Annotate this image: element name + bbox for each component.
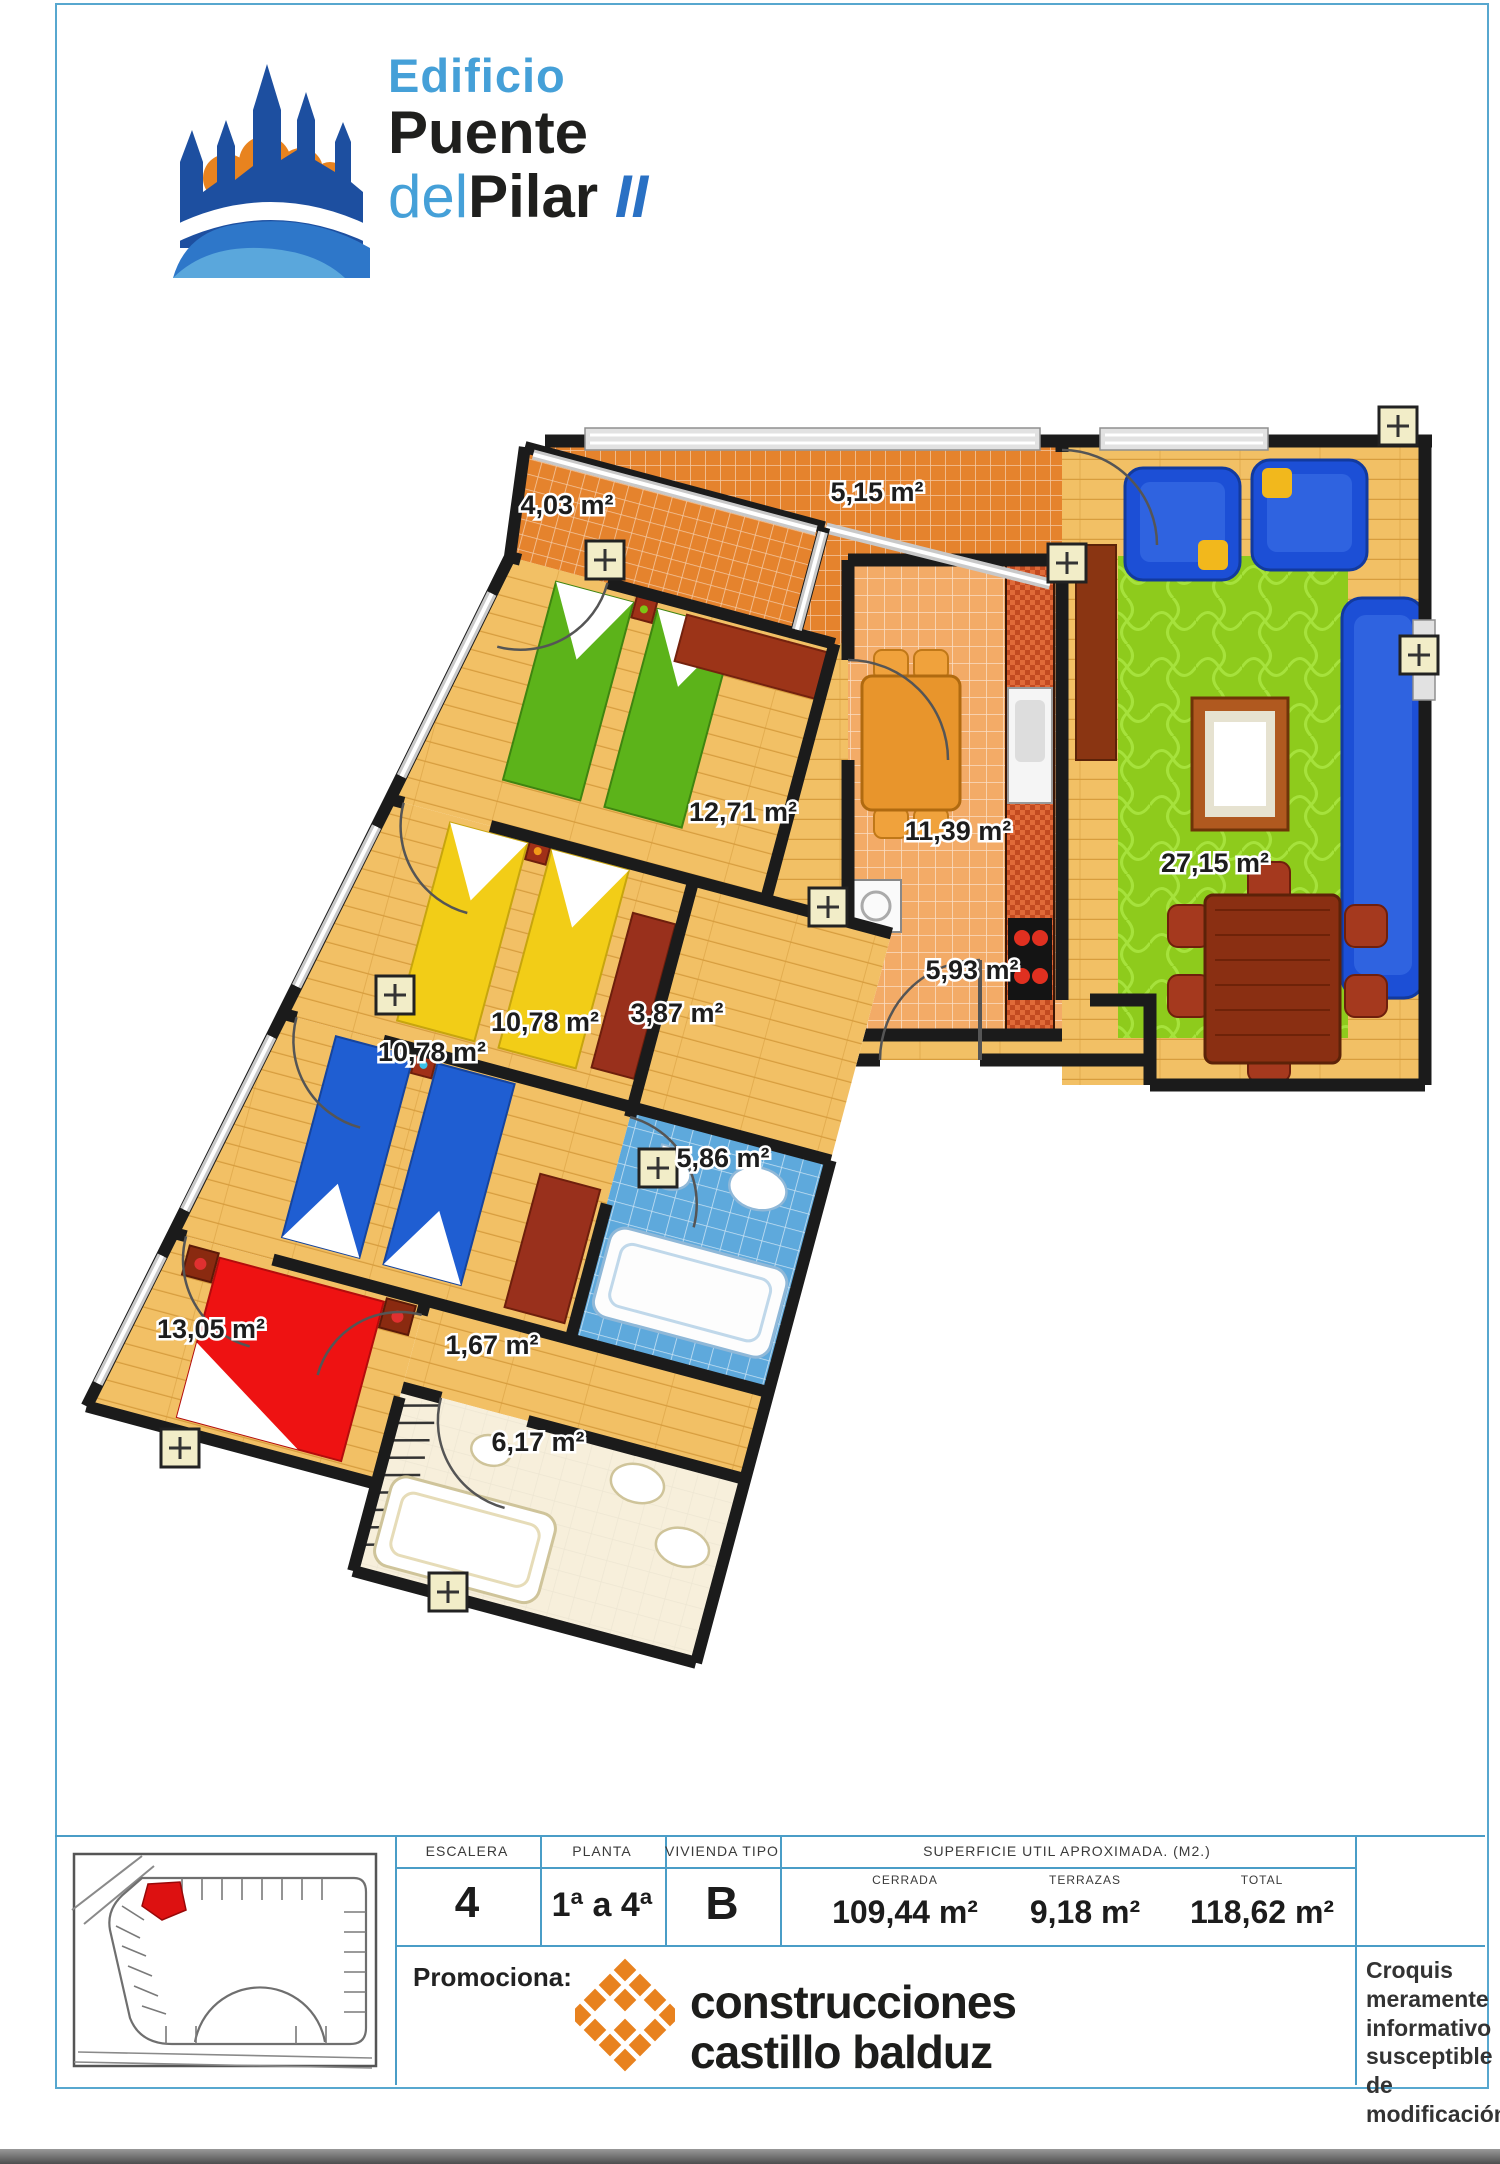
company-line1: construcciones: [690, 1978, 1016, 2028]
room-area-label: 4,03 m²: [520, 490, 613, 520]
company-line2: castillo balduz: [690, 2028, 1016, 2078]
sub-label-total: TOTAL: [1241, 1873, 1284, 1887]
room-area-label: 10,78 m²: [378, 1037, 486, 1067]
room-area-label: 27,15 m²: [1161, 848, 1269, 878]
room-area-label: 3,87 m²: [630, 998, 723, 1028]
floor-plan: 4,03 m² 5,15 m² 12,71 m² 11,39 m² 27,15 …: [0, 0, 1500, 2164]
sub-label-terrazas: TERRAZAS: [1049, 1873, 1121, 1887]
floorplan-page: { "logo": { "line1": "Edificio", "line2"…: [0, 0, 1500, 2164]
room-area-label: 5,93 m²: [925, 955, 1018, 985]
value-cerrada: 109,44 m²: [832, 1894, 978, 1931]
grid-line: [395, 1945, 1485, 1947]
armchair: [1125, 468, 1240, 580]
grid-line: [55, 1835, 1485, 1837]
room-area-label: 10,78 m²: [491, 1007, 599, 1037]
room-area-label: 1,67 m²: [445, 1330, 538, 1360]
header-planta: PLANTA: [572, 1843, 631, 1859]
room-area-label: 5,86 m²: [676, 1143, 769, 1173]
company-name: construcciones castillo balduz: [690, 1978, 1016, 2077]
value-terrazas: 9,18 m²: [1030, 1894, 1140, 1931]
grid-line: [780, 1835, 782, 1945]
value-vivienda: B: [705, 1876, 738, 1930]
value-total: 118,62 m²: [1190, 1894, 1334, 1931]
header-superficie: SUPERFICIE UTIL APROXIMADA. (M2.): [923, 1843, 1211, 1859]
value-planta: 1ª a 4ª: [552, 1886, 653, 1925]
header-vivienda: VIVIENDA TIPO: [665, 1843, 779, 1859]
armchair: [1252, 460, 1367, 570]
site-plan: [70, 1848, 382, 2079]
grid-line: [395, 1835, 397, 2085]
room-area-label: 13,05 m²: [157, 1314, 265, 1344]
value-escalera: 4: [455, 1878, 479, 1928]
grid-line: [1355, 1835, 1357, 2085]
diamond-tiles-icon: [575, 1956, 675, 2074]
header-escalera: ESCALERA: [426, 1843, 509, 1859]
promo-label: Promociona:: [413, 1962, 572, 1993]
scan-edge: [0, 2149, 1500, 2164]
sink-basin: [1015, 700, 1045, 762]
room-area-label: 6,17 m²: [491, 1427, 584, 1457]
kitchen-table-set: [862, 650, 960, 838]
disclaimer: Croquis meramente informativo susceptibl…: [1366, 1956, 1484, 2129]
room-area-label: 11,39 m²: [905, 816, 1012, 846]
coffee-table: [1192, 698, 1288, 830]
grid-line: [540, 1835, 542, 1945]
room-area-label: 5,15 m²: [830, 477, 923, 507]
room-area-label: 12,71 m²: [689, 797, 797, 827]
company-logo: [575, 1956, 675, 2079]
sub-label-cerrada: CERRADA: [872, 1873, 938, 1887]
